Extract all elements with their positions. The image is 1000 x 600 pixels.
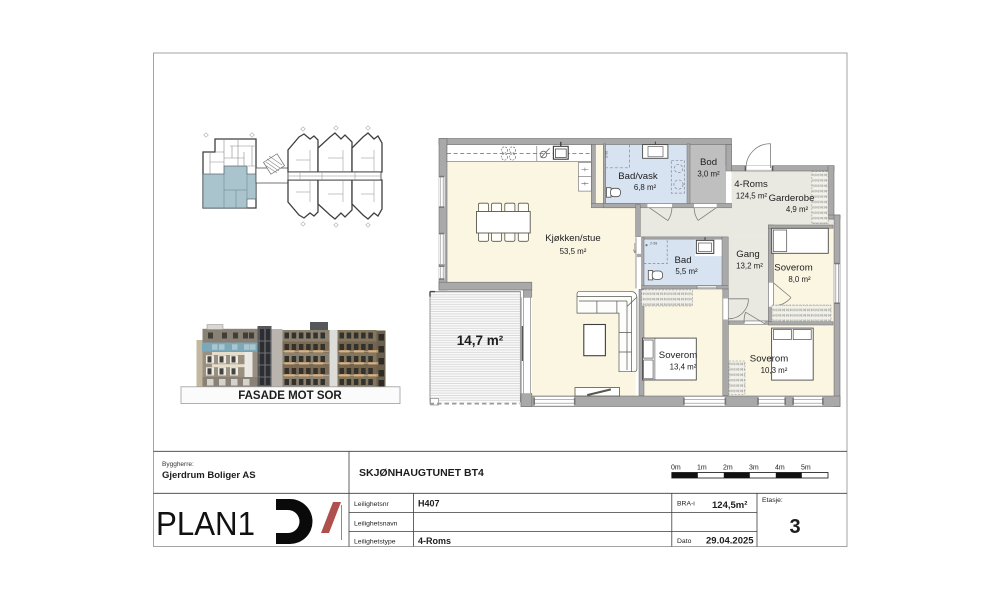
svg-text:Garderobe: Garderobe	[769, 193, 815, 204]
svg-text:PLAN1: PLAN1	[156, 505, 255, 542]
svg-text:29.04.2025: 29.04.2025	[706, 536, 754, 547]
svg-text:Leilighetstype: Leilighetstype	[354, 539, 396, 546]
svg-text:Kjøkken/stue: Kjøkken/stue	[545, 233, 600, 244]
svg-text:124,5m²: 124,5m²	[712, 500, 747, 511]
svg-text:4m: 4m	[775, 465, 785, 472]
svg-text:13,4 m²: 13,4 m²	[670, 363, 697, 372]
svg-text:Soverom: Soverom	[659, 350, 697, 361]
svg-text:3m: 3m	[749, 465, 759, 472]
svg-text:53,5 m²: 53,5 m²	[560, 247, 587, 256]
svg-text:FASADE MOT SOR: FASADE MOT SOR	[238, 390, 342, 402]
svg-text:0m: 0m	[671, 465, 681, 472]
svg-text:5m: 5m	[801, 465, 811, 472]
svg-text:4-Roms: 4-Roms	[734, 179, 768, 190]
svg-text:3,0 m²: 3,0 m²	[697, 170, 720, 179]
svg-text:Bad: Bad	[674, 255, 691, 266]
svg-text:2m: 2m	[723, 465, 733, 472]
svg-text:BRA-i: BRA-i	[677, 501, 695, 508]
svg-text:Dato: Dato	[677, 538, 692, 545]
svg-text:H407: H407	[418, 499, 440, 509]
svg-text:Gang: Gang	[736, 249, 759, 260]
svg-text:2-58: 2-58	[650, 242, 657, 246]
svg-text:Bad/vask: Bad/vask	[618, 171, 658, 182]
svg-text:Gjerdrum Boliger AS: Gjerdrum Boliger AS	[162, 470, 256, 481]
svg-text:Byggherre:: Byggherre:	[162, 461, 194, 468]
svg-text:Soverom: Soverom	[750, 354, 788, 365]
svg-text:1m: 1m	[697, 465, 707, 472]
svg-text:2-56: 2-56	[605, 151, 609, 158]
svg-text:3: 3	[789, 516, 800, 538]
svg-text:SKJØNHAUGTUNET BT4: SKJØNHAUGTUNET BT4	[359, 467, 484, 479]
svg-text:Etasje:: Etasje:	[762, 497, 783, 504]
svg-text:8,0 m²: 8,0 m²	[788, 275, 811, 284]
svg-text:5,5 m²: 5,5 m²	[675, 267, 698, 276]
svg-text:13,2 m²: 13,2 m²	[736, 262, 763, 271]
svg-text:14,7 m²: 14,7 m²	[457, 333, 504, 348]
svg-text:6,8 m²: 6,8 m²	[634, 183, 657, 192]
svg-text:Leilighetsnr: Leilighetsnr	[354, 501, 389, 508]
svg-text:4-Roms: 4-Roms	[418, 536, 451, 546]
svg-text:Soverom: Soverom	[774, 263, 812, 274]
svg-text:Bod: Bod	[700, 157, 717, 168]
svg-text:124,5 m²: 124,5 m²	[736, 192, 768, 201]
svg-text:Leilighetsnavn: Leilighetsnavn	[354, 521, 398, 528]
svg-text:4,9 m²: 4,9 m²	[786, 205, 809, 214]
svg-text:10,3 m²: 10,3 m²	[761, 366, 788, 375]
